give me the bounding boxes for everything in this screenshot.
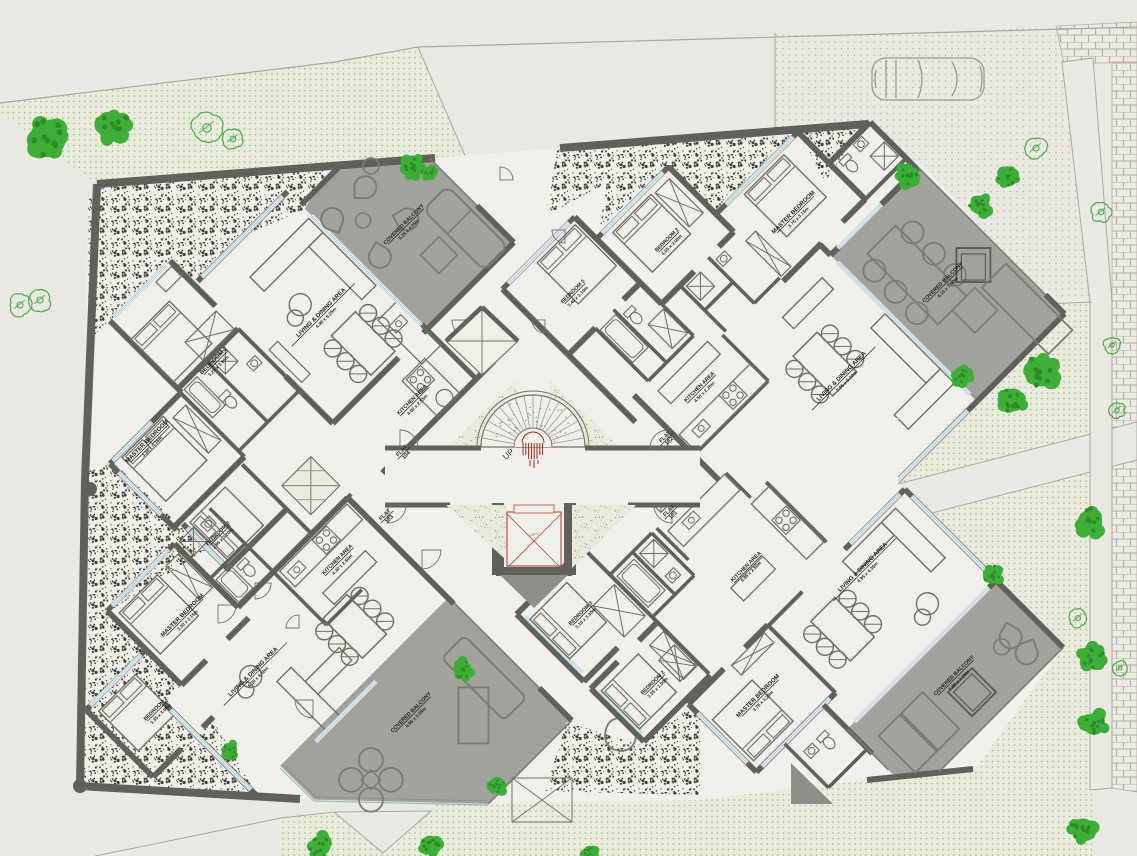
- svg-text:LIFT: LIFT: [529, 532, 539, 537]
